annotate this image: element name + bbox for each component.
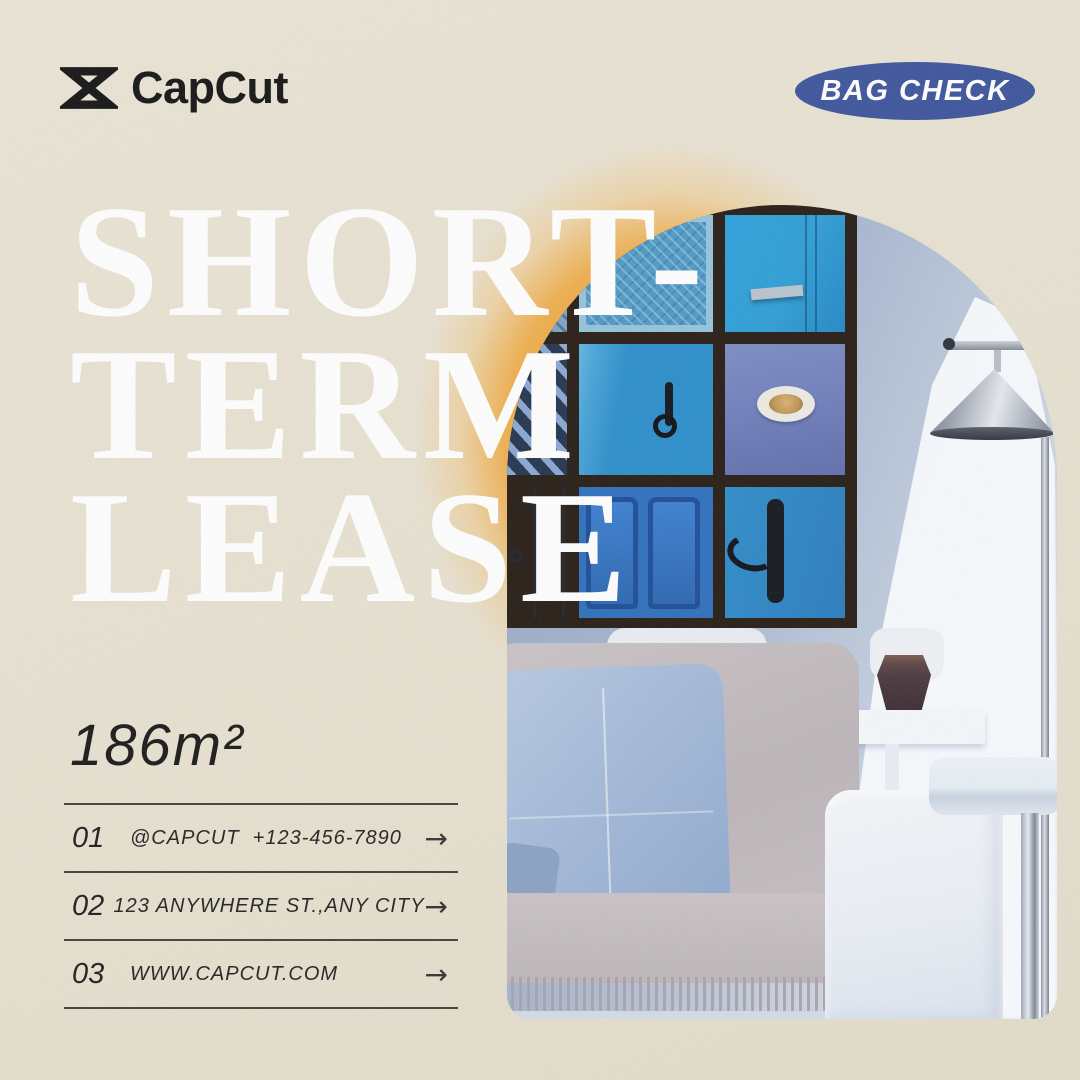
- bag-check-badge[interactable]: BAG CHECK: [795, 62, 1035, 120]
- contact-row-1[interactable]: 01 @CAPCUT +123-456-7890 →: [64, 803, 458, 871]
- sofa-base: [507, 1011, 867, 1019]
- bag-check-badge-label: BAG CHECK: [820, 75, 1009, 108]
- capcut-logo-icon: [60, 62, 118, 114]
- contact-row-number: 01: [72, 822, 130, 855]
- c-table-top: [929, 757, 1057, 815]
- door-cell: [725, 487, 845, 618]
- contact-list: 01 @CAPCUT +123-456-7890 → 02 123 ANYWHE…: [64, 803, 458, 1009]
- door-medallion-core: [769, 394, 803, 414]
- floor-lamp-rim: [930, 427, 1054, 440]
- pillow-seam: [602, 689, 612, 914]
- door-cell: [725, 215, 845, 332]
- headline: SHORT- TERM LEASE: [70, 190, 711, 619]
- contact-row-number: 03: [72, 958, 130, 991]
- pillow-seam: [509, 811, 713, 820]
- floor-lamp-arm: [947, 341, 1057, 350]
- headline-line-2: TERM: [70, 333, 711, 476]
- capcut-logo: CapCut: [60, 62, 288, 114]
- arrow-right-icon[interactable]: →: [425, 822, 448, 855]
- sofa-blanket-drape: [507, 893, 867, 983]
- headline-line-3: LEASE: [70, 476, 711, 619]
- arrow-right-icon[interactable]: →: [425, 890, 448, 923]
- contact-row-text: WWW.CAPCUT.COM: [130, 963, 425, 986]
- area-value: 186m²: [70, 712, 244, 779]
- capcut-logo-text: CapCut: [131, 62, 288, 114]
- door-cell: [725, 344, 845, 475]
- contact-row-number: 02: [72, 890, 114, 923]
- contact-row-3[interactable]: 03 WWW.CAPCUT.COM →: [64, 939, 458, 1009]
- side-table: [855, 710, 985, 744]
- contact-row-2[interactable]: 02 123 ANYWHERE ST.,ANY CITY →: [64, 871, 458, 939]
- door-rod: [815, 215, 817, 332]
- contact-row-text: @CAPCUT +123-456-7890: [130, 827, 425, 850]
- side-table-leg: [885, 744, 899, 794]
- floor-lamp-pole: [1041, 437, 1049, 1019]
- poster-canvas: SHORT- TERM LEASE CapCut BAG CHECK 186m²…: [0, 0, 1080, 1080]
- arrow-right-icon[interactable]: →: [425, 958, 448, 991]
- door-rod: [805, 215, 807, 332]
- headline-line-1: SHORT-: [70, 190, 711, 333]
- floor-lamp-hanger: [994, 350, 1001, 372]
- floor-lamp-cap: [943, 338, 955, 350]
- door-letterbox: [751, 285, 804, 300]
- sofa-armrest: [825, 790, 1003, 1019]
- door-medallion: [757, 386, 815, 422]
- decor-vase: [877, 655, 931, 712]
- c-table-leg: [1021, 813, 1039, 1019]
- contact-row-text: 123 ANYWHERE ST.,ANY CITY: [114, 895, 425, 918]
